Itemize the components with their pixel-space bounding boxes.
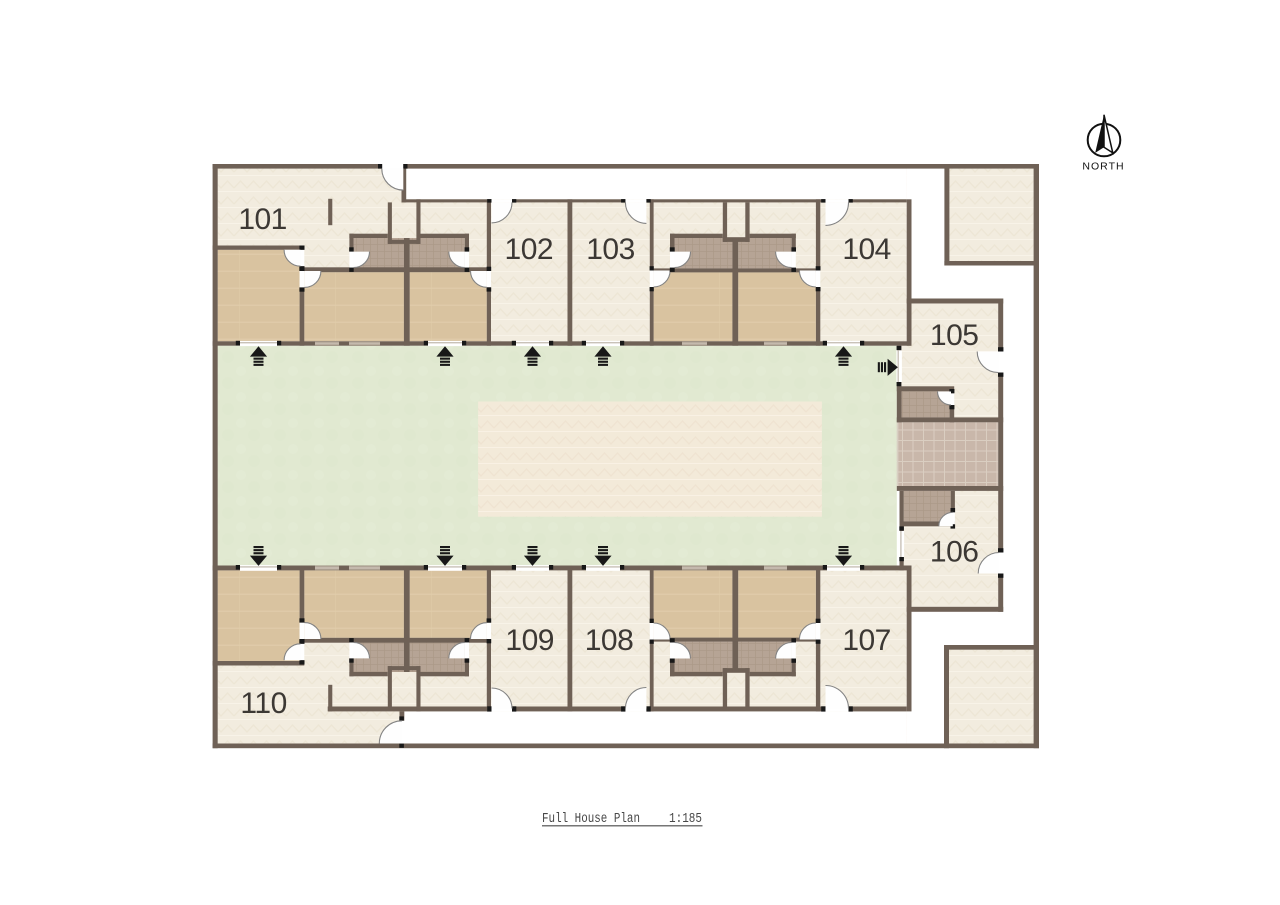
svg-text:NORTH: NORTH (1082, 161, 1124, 173)
svg-text:107: 107 (842, 624, 891, 657)
svg-text:105: 105 (930, 319, 979, 352)
svg-text:108: 108 (585, 624, 634, 657)
svg-text:102: 102 (505, 233, 554, 266)
svg-text:103: 103 (586, 233, 635, 266)
svg-text:104: 104 (842, 233, 891, 266)
svg-text:1:185: 1:185 (669, 812, 702, 827)
svg-text:106: 106 (930, 536, 979, 569)
svg-text:109: 109 (505, 624, 554, 657)
svg-text:101: 101 (238, 203, 287, 236)
svg-text:Full House Plan: Full House Plan (542, 812, 640, 827)
svg-text:110: 110 (240, 687, 286, 720)
